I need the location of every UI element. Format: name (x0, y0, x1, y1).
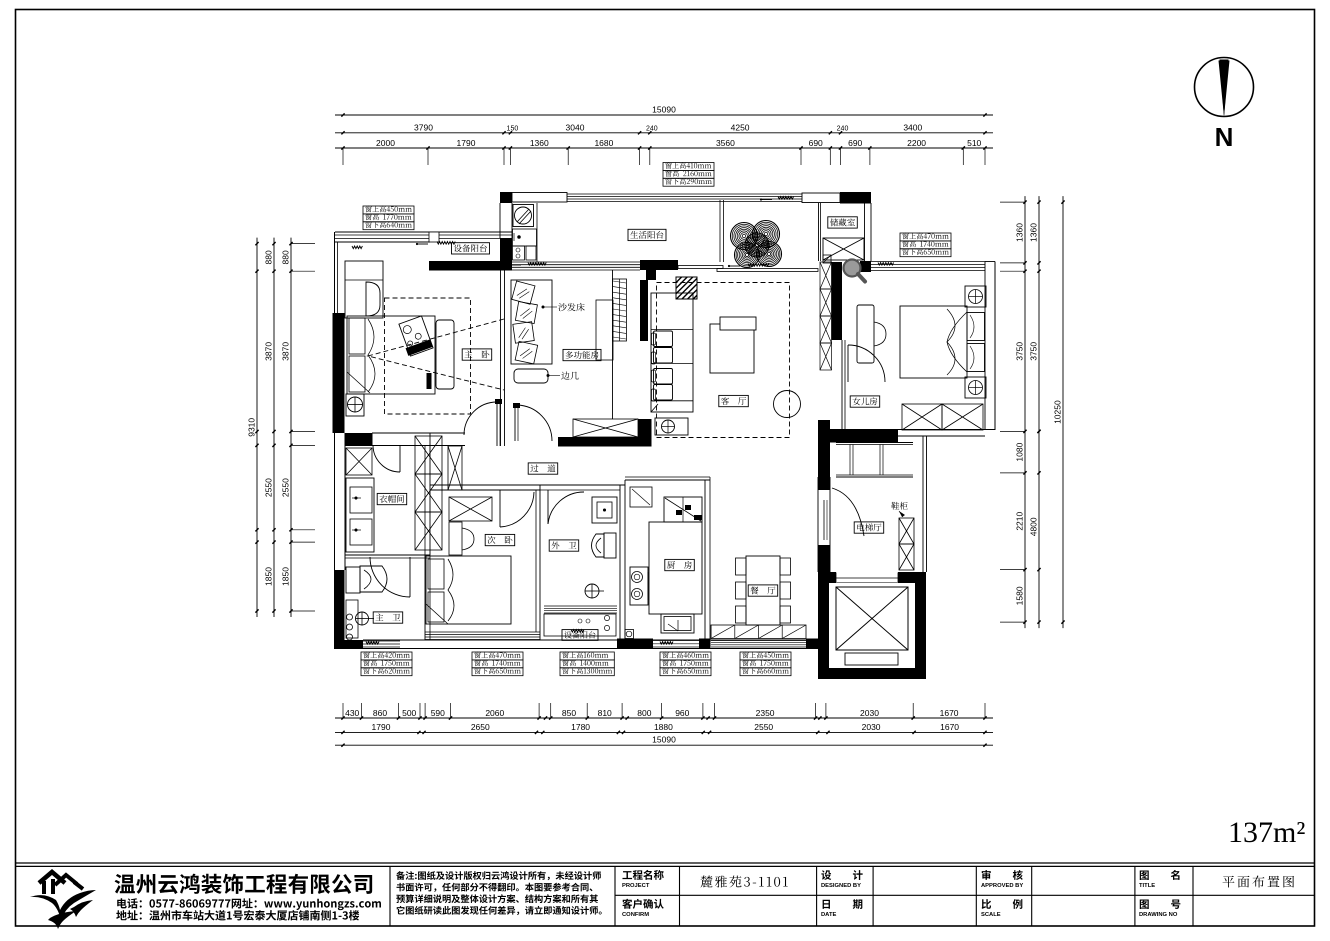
svg-text:2550: 2550 (281, 478, 291, 497)
svg-text:2060: 2060 (485, 708, 504, 718)
svg-text:880: 880 (281, 250, 291, 264)
svg-text:1080: 1080 (1015, 442, 1025, 461)
svg-text:1680: 1680 (594, 138, 613, 148)
svg-text:2550: 2550 (754, 722, 773, 732)
svg-text:1790: 1790 (372, 722, 391, 732)
svg-text:3790: 3790 (414, 123, 433, 133)
svg-text:10250: 10250 (1053, 400, 1063, 424)
svg-text:15090: 15090 (652, 105, 676, 115)
svg-text:4800: 4800 (1029, 517, 1039, 536)
svg-text:APPROVED BY: APPROVED BY (981, 883, 1023, 889)
svg-text:590: 590 (431, 708, 445, 718)
svg-text:510: 510 (967, 138, 981, 148)
svg-text:15090: 15090 (652, 735, 676, 745)
svg-text:1780: 1780 (571, 722, 590, 732)
svg-text:1360: 1360 (530, 138, 549, 148)
svg-text:1360: 1360 (1015, 223, 1025, 242)
svg-text:DRAWING NO: DRAWING NO (1139, 912, 1178, 918)
svg-text:2200: 2200 (907, 138, 926, 148)
svg-text:430: 430 (345, 708, 359, 718)
svg-text:240: 240 (837, 126, 849, 133)
svg-text:4250: 4250 (731, 123, 750, 133)
svg-text:3870: 3870 (264, 342, 274, 361)
svg-text:1850: 1850 (281, 567, 291, 586)
svg-text:800: 800 (637, 708, 651, 718)
svg-text:2350: 2350 (756, 708, 775, 718)
svg-text:240: 240 (646, 126, 658, 133)
svg-text:860: 860 (373, 708, 387, 718)
svg-text:TITLE: TITLE (1139, 883, 1155, 889)
svg-text:1360: 1360 (1029, 223, 1039, 242)
svg-text:960: 960 (675, 708, 689, 718)
svg-text:1670: 1670 (940, 708, 959, 718)
svg-text:150: 150 (507, 126, 519, 133)
svg-text:9310: 9310 (247, 418, 257, 437)
svg-text:2030: 2030 (860, 708, 879, 718)
svg-text:3400: 3400 (903, 123, 922, 133)
svg-text:810: 810 (598, 708, 612, 718)
svg-text:690: 690 (809, 138, 823, 148)
svg-text:1880: 1880 (654, 722, 673, 732)
svg-text:CONFIRM: CONFIRM (622, 912, 649, 918)
svg-text:1790: 1790 (457, 138, 476, 148)
svg-text:137m²: 137m² (1228, 816, 1305, 849)
svg-text:1670: 1670 (940, 722, 959, 732)
svg-text:2550: 2550 (264, 478, 274, 497)
svg-text:850: 850 (562, 708, 576, 718)
svg-text:1850: 1850 (264, 567, 274, 586)
svg-text:500: 500 (402, 708, 416, 718)
svg-text:DATE: DATE (821, 912, 836, 918)
svg-text:690: 690 (848, 138, 862, 148)
svg-text:SCALE: SCALE (981, 912, 1001, 918)
svg-text:3870: 3870 (281, 342, 291, 361)
svg-text:3750: 3750 (1015, 342, 1025, 361)
svg-text:880: 880 (264, 250, 274, 264)
svg-text:2650: 2650 (471, 722, 490, 732)
svg-text:2000: 2000 (376, 138, 395, 148)
svg-text:DESIGNED BY: DESIGNED BY (821, 883, 861, 889)
svg-text:PROJECT: PROJECT (622, 883, 650, 889)
svg-text:3560: 3560 (716, 138, 735, 148)
svg-text:2210: 2210 (1015, 511, 1025, 530)
svg-text:3750: 3750 (1029, 342, 1039, 361)
svg-text:3040: 3040 (566, 123, 585, 133)
svg-text:1580: 1580 (1015, 586, 1025, 605)
svg-text:N: N (1215, 122, 1234, 152)
svg-text:2030: 2030 (862, 722, 881, 732)
